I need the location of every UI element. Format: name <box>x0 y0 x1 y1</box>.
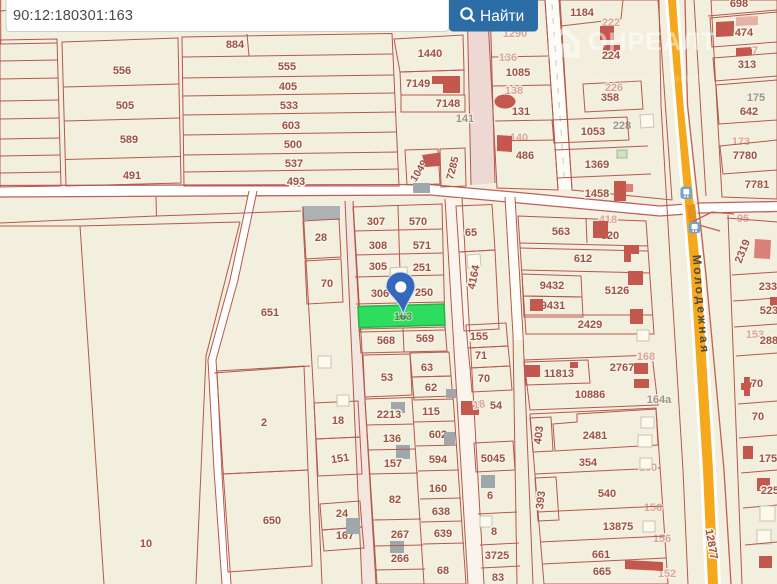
svg-text:568: 568 <box>377 335 395 347</box>
svg-text:651: 651 <box>261 307 279 319</box>
svg-text:354: 354 <box>579 457 598 469</box>
svg-text:9431: 9431 <box>541 300 565 312</box>
svg-text:53: 53 <box>381 372 393 384</box>
svg-text:533: 533 <box>280 100 298 112</box>
svg-text:6: 6 <box>487 490 493 502</box>
svg-text:Найти: Найти <box>480 8 524 25</box>
svg-text:175: 175 <box>759 453 777 465</box>
svg-text:571: 571 <box>413 240 431 252</box>
svg-text:665: 665 <box>593 566 611 578</box>
svg-text:11813: 11813 <box>544 368 574 380</box>
svg-text:612: 612 <box>574 253 592 265</box>
svg-text:9432: 9432 <box>540 280 564 292</box>
svg-text:642: 642 <box>740 106 758 118</box>
svg-text:7780: 7780 <box>733 150 757 162</box>
svg-text:157: 157 <box>384 458 402 470</box>
svg-text:2213: 2213 <box>377 409 401 421</box>
svg-text:5233: 5233 <box>760 305 777 317</box>
svg-text:1458: 1458 <box>585 188 609 200</box>
svg-text:НЕДВИЖИМОСТЬ ОНЛАЙН: НЕДВИЖИМОСТЬ ОНЛАЙН <box>592 75 707 84</box>
svg-text:589: 589 <box>120 134 138 146</box>
svg-text:486: 486 <box>516 150 534 162</box>
svg-text:151: 151 <box>330 452 350 466</box>
svg-text:650: 650 <box>263 515 281 527</box>
svg-text:70: 70 <box>751 378 763 390</box>
svg-text:403: 403 <box>532 425 546 445</box>
svg-text:540: 540 <box>598 488 616 500</box>
svg-text:8: 8 <box>491 526 497 538</box>
svg-text:661: 661 <box>592 549 610 561</box>
svg-text:5045: 5045 <box>481 453 505 465</box>
svg-text:1184: 1184 <box>570 7 595 19</box>
svg-text:307: 307 <box>367 216 385 228</box>
svg-text:474: 474 <box>735 27 754 39</box>
svg-text:3725: 3725 <box>485 550 509 562</box>
svg-text:140: 140 <box>510 132 528 144</box>
svg-text:2: 2 <box>261 417 267 429</box>
svg-text:1053: 1053 <box>581 126 605 138</box>
svg-text:2886: 2886 <box>760 335 777 347</box>
svg-text:7149: 7149 <box>406 78 430 90</box>
svg-text:156: 156 <box>653 533 671 545</box>
svg-text:698: 698 <box>730 0 748 10</box>
svg-text:156: 156 <box>644 502 662 514</box>
svg-text:68: 68 <box>437 565 449 577</box>
svg-text:13875: 13875 <box>603 521 634 533</box>
svg-text:115: 115 <box>422 406 440 418</box>
svg-text:ОНРЕАЛТ: ОНРЕАЛТ <box>588 28 717 56</box>
svg-text:18: 18 <box>332 415 344 427</box>
svg-text:71: 71 <box>475 350 487 362</box>
svg-text:306: 306 <box>371 288 389 300</box>
svg-text:491: 491 <box>123 170 141 182</box>
svg-text:556: 556 <box>113 65 131 77</box>
svg-text:569: 569 <box>416 333 434 345</box>
svg-text:638: 638 <box>432 506 450 518</box>
svg-text:62: 62 <box>425 382 437 394</box>
svg-text:405: 405 <box>279 81 297 93</box>
svg-text:500: 500 <box>284 139 302 151</box>
svg-text:7148: 7148 <box>436 98 460 110</box>
svg-text:90:12:180301:163: 90:12:180301:163 <box>13 8 133 24</box>
svg-text:65: 65 <box>465 227 477 239</box>
svg-text:2481: 2481 <box>583 430 607 442</box>
svg-text:505: 505 <box>116 100 134 112</box>
svg-text:570: 570 <box>409 216 427 228</box>
svg-text:168: 168 <box>637 351 655 363</box>
svg-text:266: 266 <box>391 553 409 565</box>
svg-text:563: 563 <box>552 226 570 238</box>
svg-text:2429: 2429 <box>578 319 602 331</box>
svg-text:603: 603 <box>282 120 300 132</box>
svg-text:305: 305 <box>369 261 387 273</box>
svg-text:54: 54 <box>490 400 503 412</box>
svg-text:70: 70 <box>321 278 333 290</box>
svg-text:308: 308 <box>369 240 387 252</box>
svg-text:537: 537 <box>285 158 303 170</box>
svg-text:141: 141 <box>456 113 474 125</box>
svg-text:136: 136 <box>499 52 517 64</box>
svg-text:358: 358 <box>601 92 619 104</box>
svg-text:1085: 1085 <box>506 67 530 79</box>
svg-text:1369: 1369 <box>585 159 609 171</box>
svg-text:10: 10 <box>140 538 152 550</box>
svg-text:10886: 10886 <box>575 389 606 401</box>
svg-text:7781: 7781 <box>745 179 769 191</box>
svg-text:82: 82 <box>389 494 401 506</box>
svg-text:251: 251 <box>413 262 431 274</box>
svg-text:70: 70 <box>752 411 764 423</box>
svg-text:173: 173 <box>732 136 750 148</box>
svg-text:28: 28 <box>315 232 327 244</box>
svg-text:393: 393 <box>534 490 548 510</box>
svg-text:136: 136 <box>383 433 401 445</box>
svg-text:493: 493 <box>287 176 305 188</box>
svg-text:63: 63 <box>421 362 433 374</box>
svg-text:2767: 2767 <box>610 362 634 374</box>
svg-text:83: 83 <box>492 572 504 584</box>
svg-text:639: 639 <box>434 528 452 540</box>
svg-text:131: 131 <box>512 106 530 118</box>
svg-text:155: 155 <box>470 331 488 343</box>
svg-text:5126: 5126 <box>605 285 629 297</box>
svg-text:555: 555 <box>278 61 296 73</box>
svg-text:313: 313 <box>738 59 756 71</box>
svg-text:1440: 1440 <box>418 48 442 60</box>
svg-text:160: 160 <box>429 483 447 495</box>
svg-text:70: 70 <box>478 373 490 385</box>
svg-text:594: 594 <box>429 454 448 466</box>
svg-text:267: 267 <box>391 529 409 541</box>
svg-text:2330: 2330 <box>759 281 777 293</box>
svg-text:250: 250 <box>415 287 433 299</box>
svg-text:175: 175 <box>747 92 765 104</box>
svg-text:164a: 164a <box>647 394 672 406</box>
svg-text:225: 225 <box>761 485 777 497</box>
svg-text:18: 18 <box>472 398 486 412</box>
svg-text:884: 884 <box>226 39 245 51</box>
